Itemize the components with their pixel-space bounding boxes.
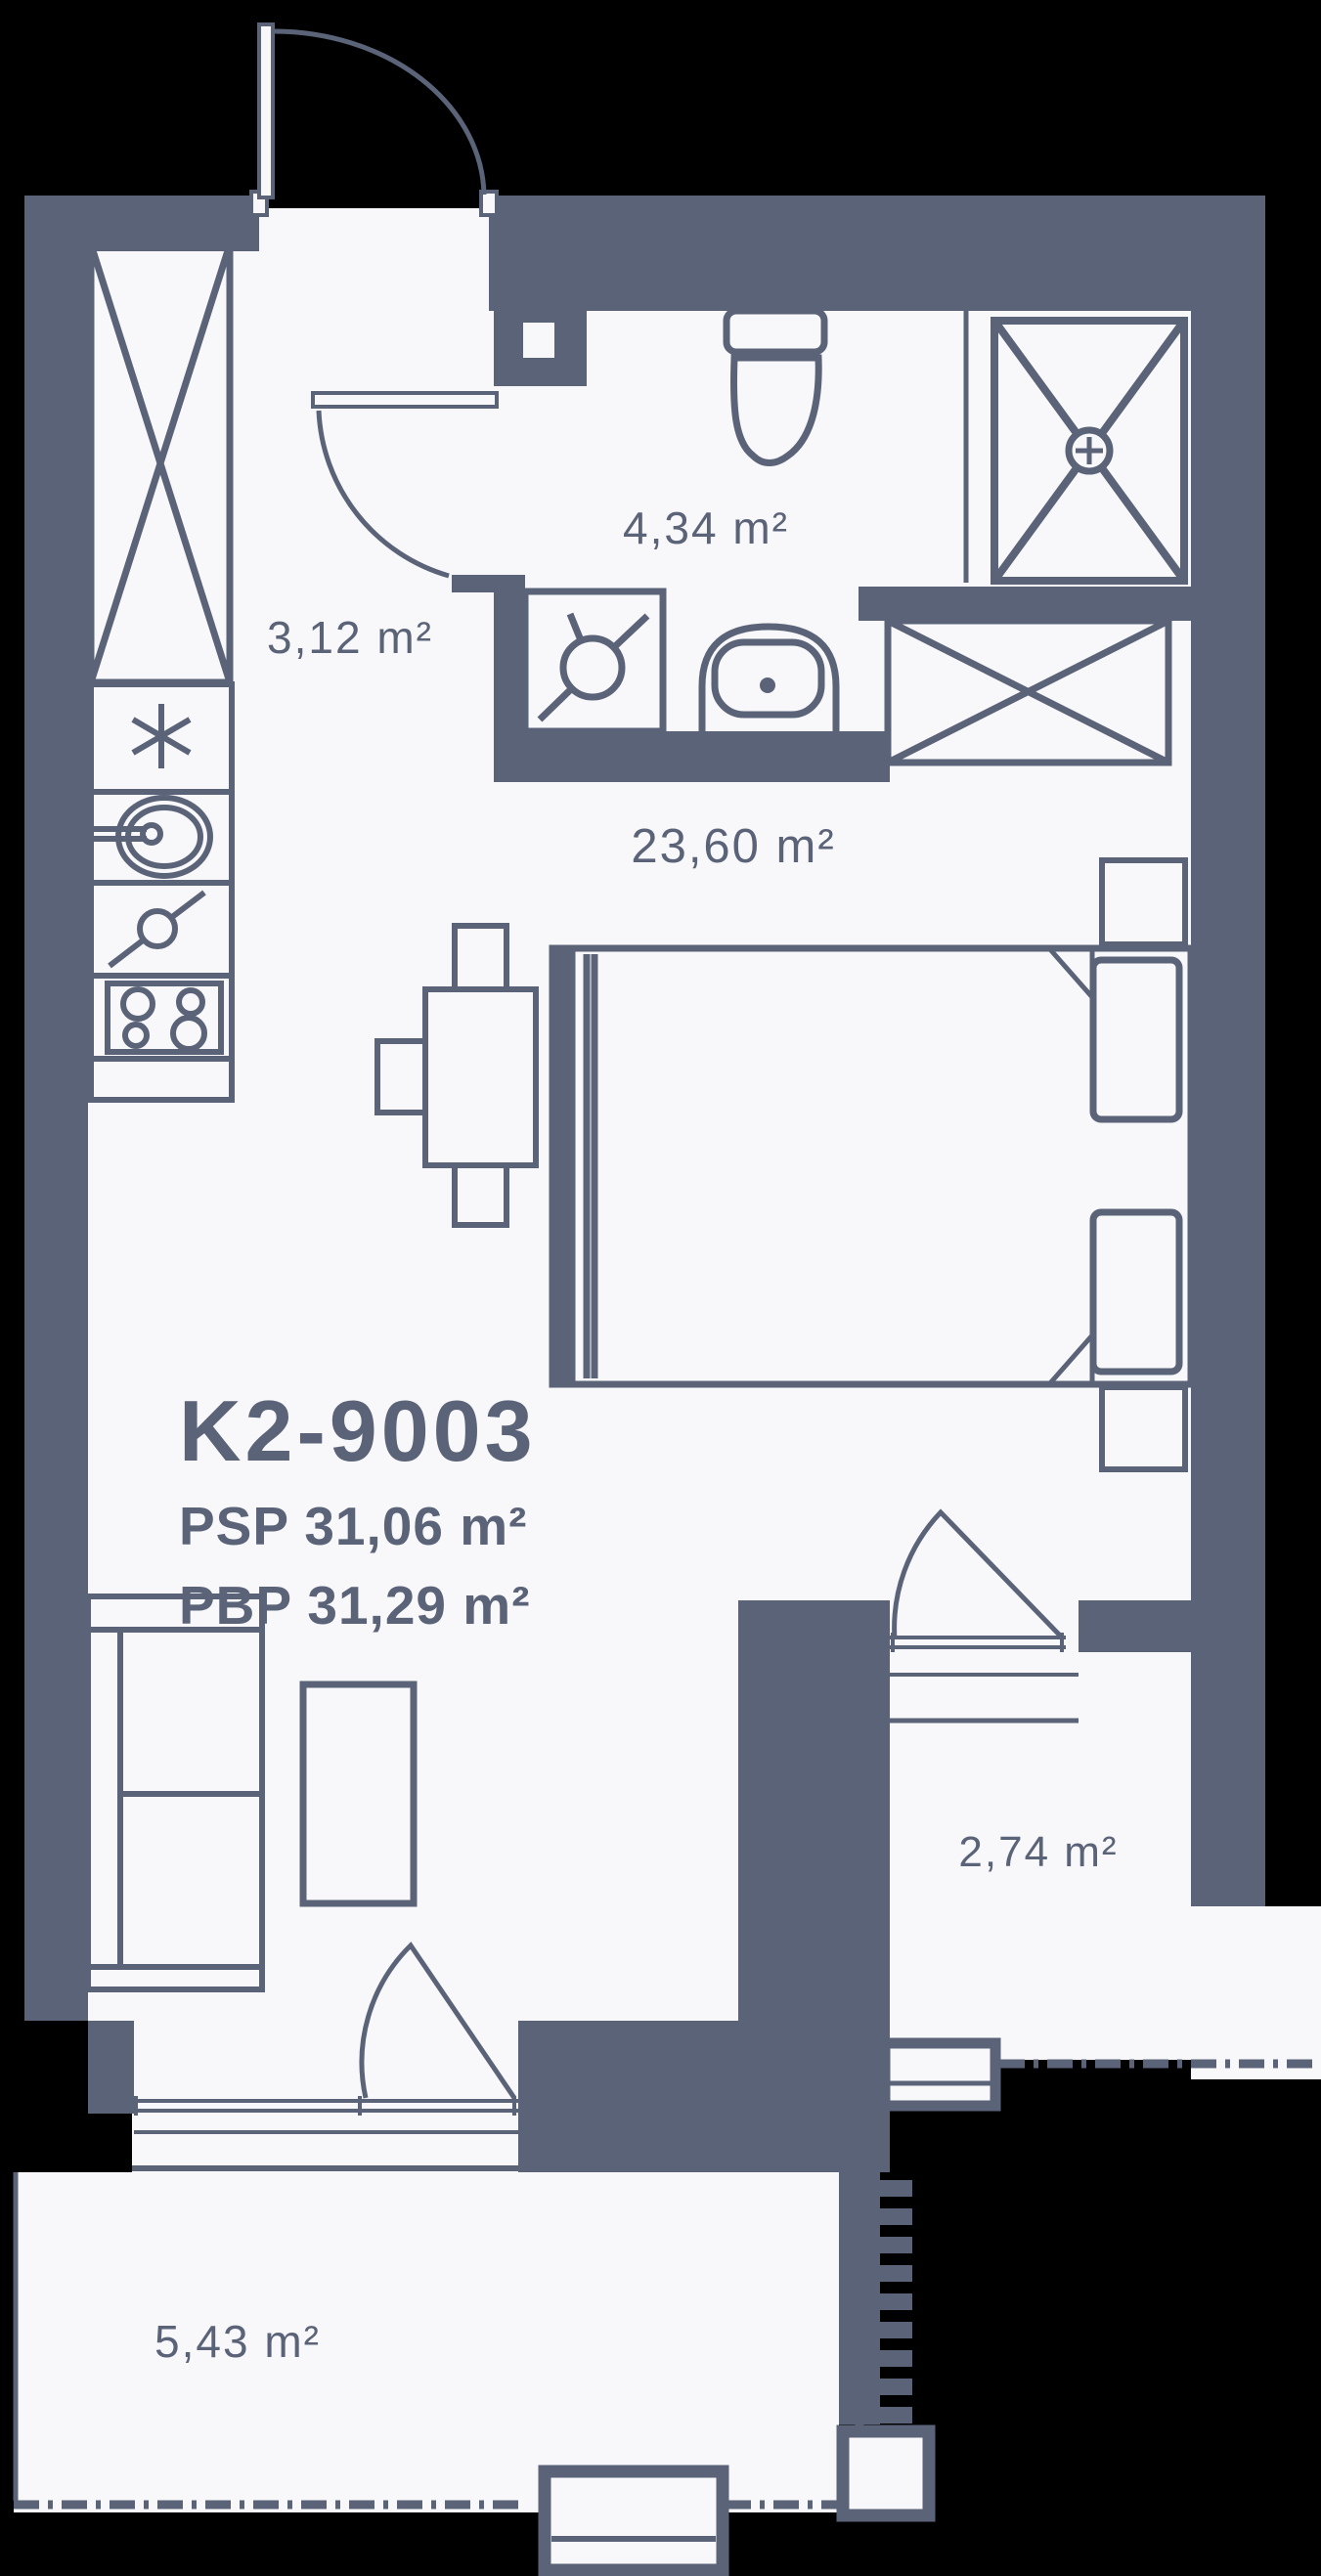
wall-door-jamb-stub: [452, 575, 496, 592]
separator-tooth: [880, 2350, 912, 2367]
wall-shower-divider-band: [859, 587, 1191, 621]
wall-left: [24, 196, 88, 2021]
separator-tooth: [880, 2379, 912, 2395]
room-label-living: 23,60 m²: [631, 819, 835, 874]
wall-right: [1191, 311, 1265, 1906]
unit-psp: PSP 31,06 m²: [179, 1500, 537, 1553]
separator-tooth: [880, 2237, 912, 2253]
floor-plan-page: 3,12 m² 4,34 m² 23,60 m² 2,74 m² 5,43 m²…: [0, 0, 1321, 2576]
unit-id: K2-9003: [179, 1388, 537, 1474]
floor-living-bottom: [134, 2021, 518, 2101]
air-conditioner-bottom: [545, 2471, 723, 2570]
shaft-notch: [523, 323, 554, 358]
room-label-balcony-bottom: 5,43 m²: [154, 2315, 321, 2368]
unit-pbp: PBP 31,29 m²: [179, 1579, 537, 1633]
room-label-bathroom: 4,34 m²: [623, 502, 789, 554]
floor-plan-drawing: [0, 0, 1321, 2576]
entry-door: [259, 24, 484, 197]
separator-tooth: [880, 2265, 912, 2282]
wall-living-bottom-block: [738, 1600, 890, 2172]
room-label-hallway: 3,12 m²: [267, 611, 433, 664]
wall-left-step: [88, 2021, 134, 2114]
floor-threshold-band-side: [890, 1650, 1079, 1725]
wall-bottom-door-block: [518, 2021, 743, 2172]
unit-info-block: K2-9003 PSP 31,06 m² PBP 31,29 m²: [179, 1388, 537, 1633]
floor-balcony-side: [888, 1725, 1191, 2060]
entry-door-arc: [275, 31, 484, 195]
wall-top-right: [489, 196, 1265, 311]
separator-tooth: [880, 2322, 912, 2338]
separator-tooth: [880, 2407, 912, 2423]
bathroom-door-leaf: [313, 393, 497, 407]
separator-tooth: [880, 2293, 912, 2310]
wall-balcony-side-stub: [1079, 1600, 1191, 1652]
entry-opening: [259, 208, 489, 251]
entry-door-leaf: [259, 24, 273, 197]
dining-table: [425, 989, 536, 1165]
separator-tooth: [880, 2180, 912, 2197]
air-conditioner-side: [885, 2043, 995, 2106]
floor-balcony-bottom: [14, 2172, 839, 2512]
room-label-balcony-side: 2,74 m²: [958, 1828, 1118, 1877]
floor-window-band-bottom: [132, 2097, 518, 2172]
entry-jamb-right: [481, 192, 497, 215]
balcony-corner-box: [843, 2431, 929, 2515]
wall-bathroom-bottom: [494, 731, 890, 782]
separator-tooth: [880, 2208, 912, 2225]
floor-balcony-side-extension: [1191, 1906, 1321, 2079]
